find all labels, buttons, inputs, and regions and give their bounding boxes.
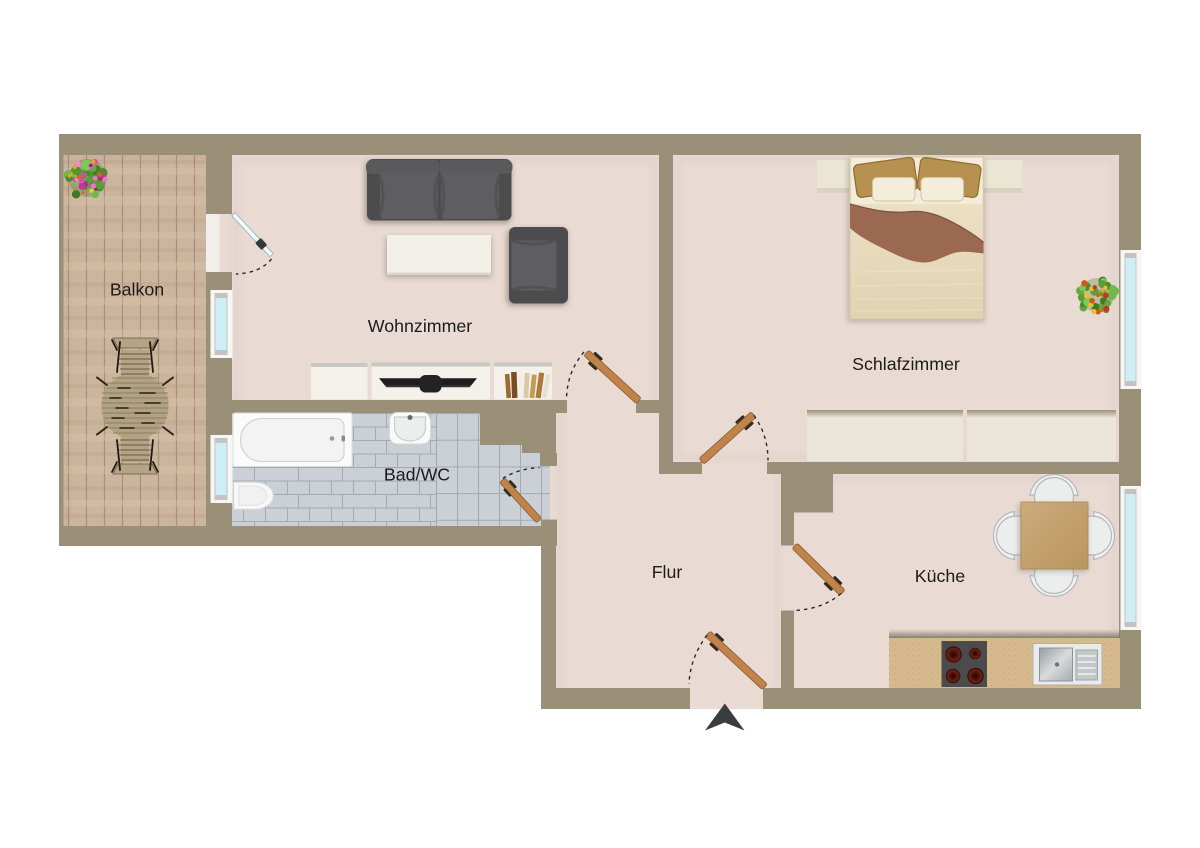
svg-text:Bad/WC: Bad/WC (384, 465, 450, 485)
svg-text:Schlafzimmer: Schlafzimmer (852, 354, 960, 374)
svg-text:Wohnzimmer: Wohnzimmer (368, 316, 472, 336)
svg-text:Flur: Flur (652, 562, 683, 582)
svg-text:Küche: Küche (915, 566, 966, 586)
svg-text:Balkon: Balkon (110, 280, 164, 300)
